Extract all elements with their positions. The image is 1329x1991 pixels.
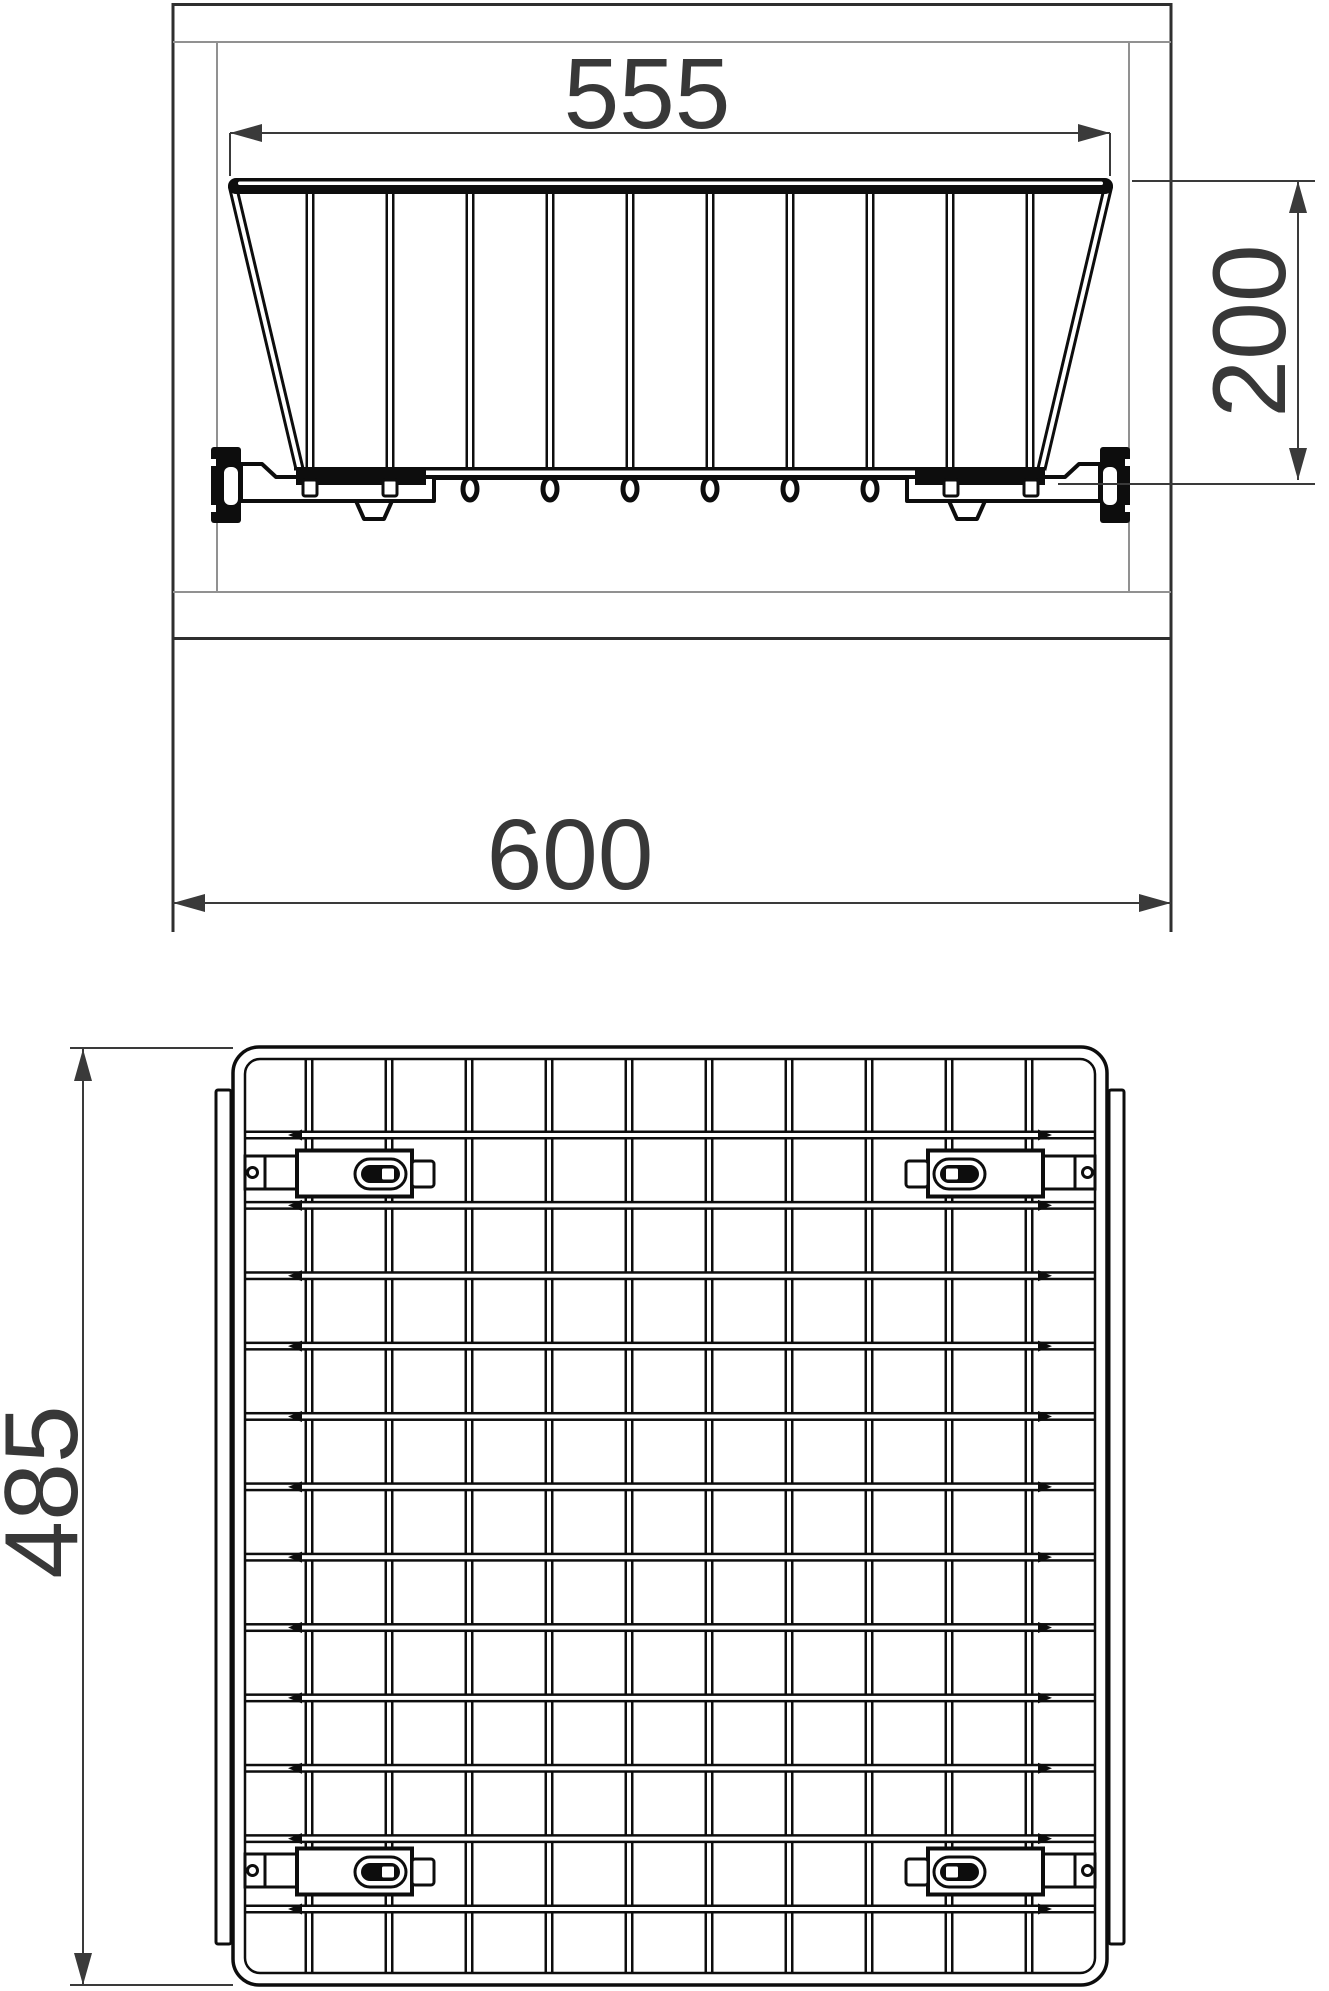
arrow-down (74, 1953, 92, 1985)
plan-view (216, 1047, 1124, 1985)
screw-hole (248, 1168, 258, 1178)
technical-drawing: 555 200 600 485 (0, 0, 1329, 1991)
dim-label-basket-width: 555 (564, 38, 731, 150)
arrow-left (173, 894, 205, 912)
slide-top-right (906, 1151, 1095, 1197)
slide-tab (412, 1161, 434, 1187)
slide-top-left (245, 1151, 434, 1197)
wire-clip-foot (383, 480, 397, 496)
arrow-down (1289, 448, 1307, 480)
latch-knob (361, 1165, 400, 1183)
left-slide-rail (216, 1090, 231, 1944)
wire-clip-foot (303, 480, 317, 496)
basket-top-rail (228, 178, 1113, 194)
wall-clamp-slot (224, 467, 238, 505)
slide-bottom-right (906, 1849, 1095, 1895)
dim-label-cabinet-width: 600 (487, 799, 654, 911)
slide-bottom-left (245, 1849, 434, 1895)
right-slide-rail (1109, 1090, 1124, 1944)
latch-notch (382, 1169, 394, 1180)
top-rail-bar (228, 178, 1113, 194)
dim-label-basket-height: 200 (1192, 244, 1308, 418)
arrow-right (1139, 894, 1171, 912)
arrow-up (74, 1049, 92, 1081)
arrow-up (1289, 181, 1307, 213)
left-runner (211, 447, 434, 523)
arrow-left (230, 124, 262, 142)
wall-clamp-notch (211, 505, 216, 512)
top-rail-highlight (238, 182, 1103, 186)
dimension-cabinet-width: 600 (173, 799, 1171, 912)
dimension-basket-width: 555 (230, 38, 1110, 176)
runner-hook-tab (356, 501, 392, 519)
dimension-basket-depth: 485 (0, 1048, 233, 1985)
dim-label-basket-depth: 485 (0, 1405, 100, 1579)
arrow-right (1078, 124, 1110, 142)
wall-clamp-notch (211, 459, 216, 466)
drawing-canvas: 555 200 600 485 (0, 0, 1329, 1991)
basket-wires-front (233, 186, 1108, 500)
